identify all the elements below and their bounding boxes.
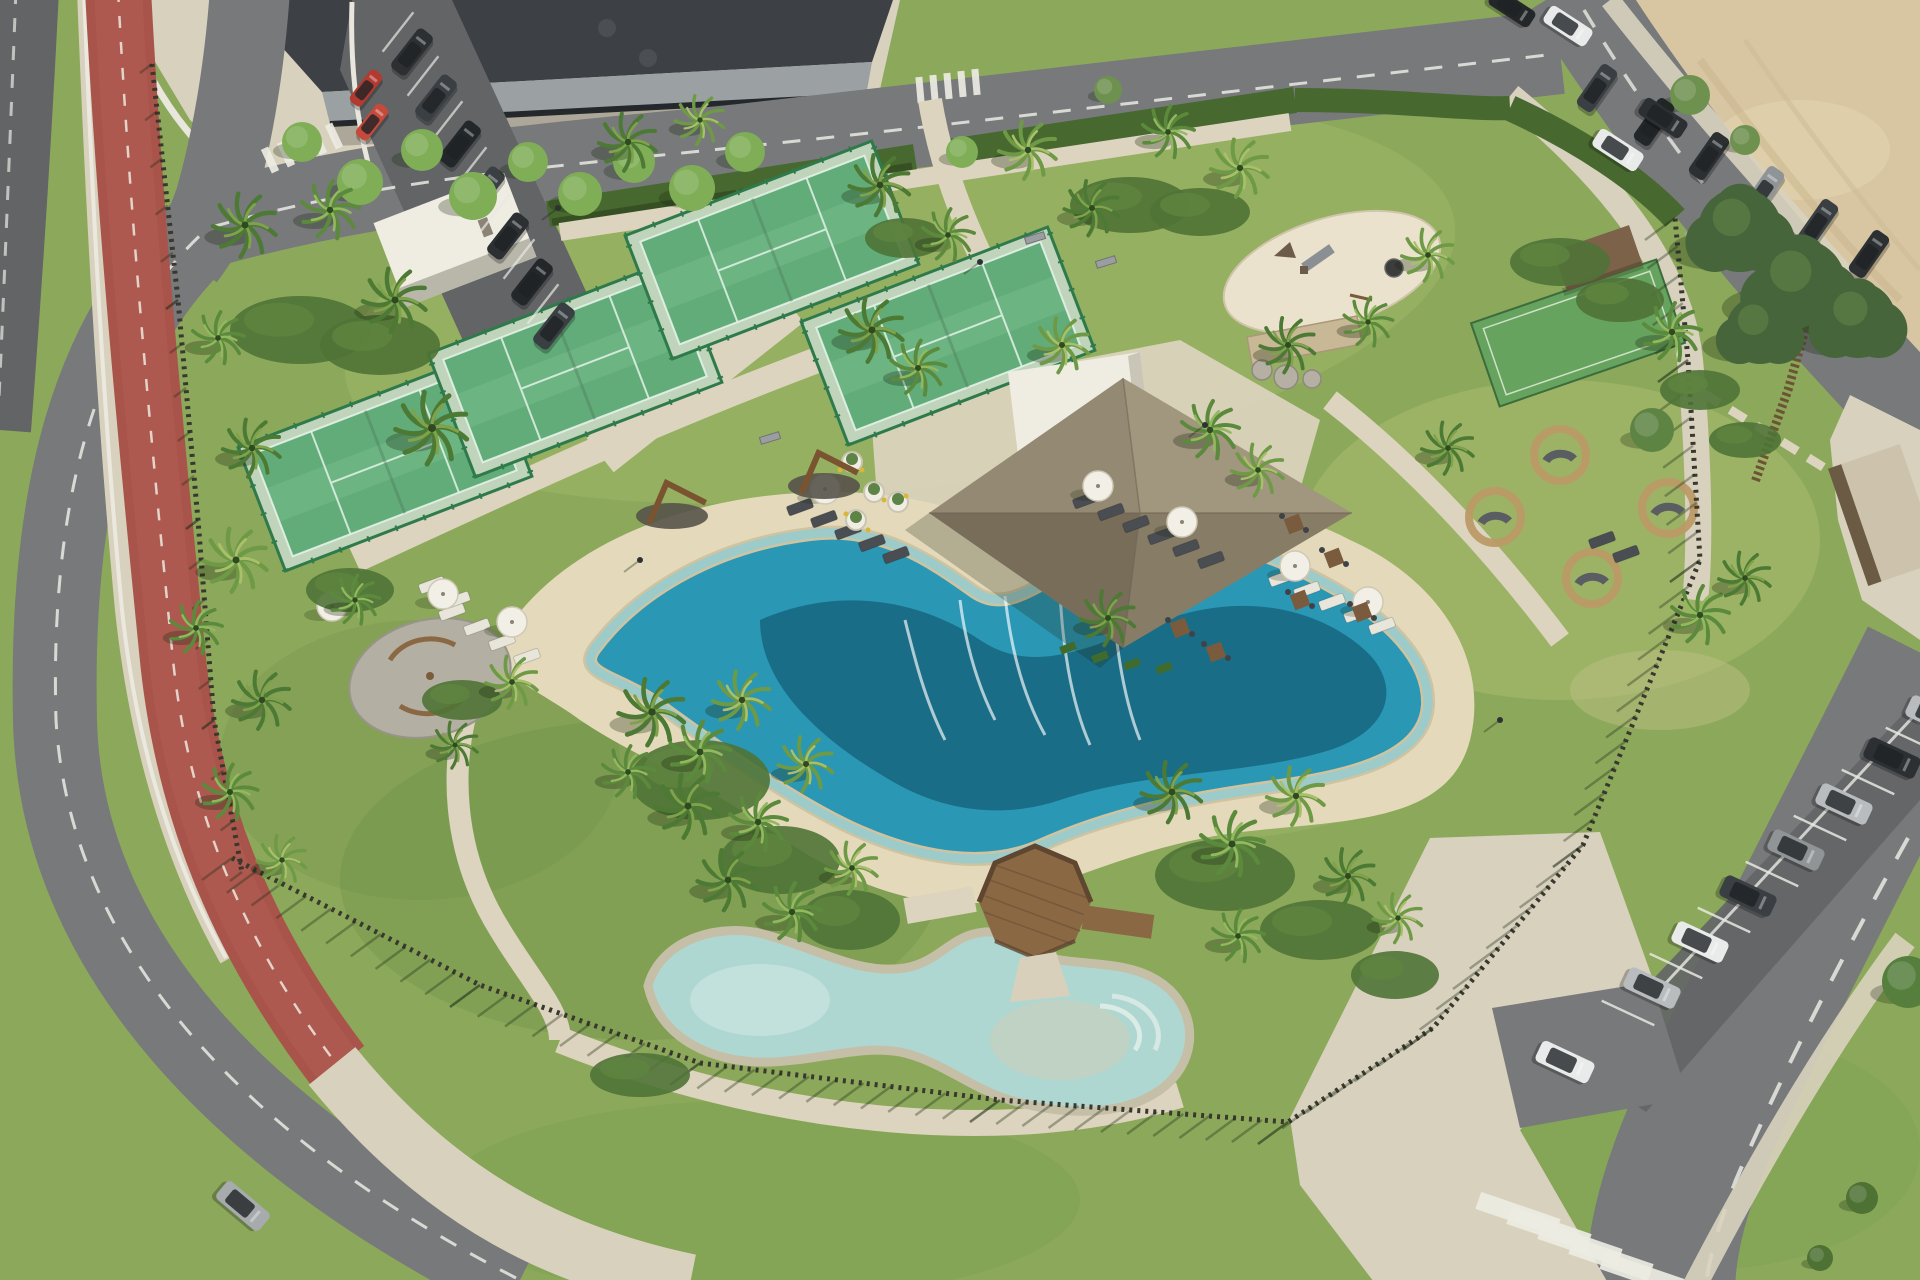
parasol-pole <box>1096 484 1100 488</box>
palm-crown <box>1425 252 1431 258</box>
tree-highlight <box>562 176 586 200</box>
palm-crown <box>327 207 333 213</box>
palm-crown <box>452 742 457 747</box>
chair <box>1309 603 1315 609</box>
shrub-bed <box>810 896 860 926</box>
tree-highlight <box>1634 412 1658 436</box>
palm-crown <box>193 625 199 631</box>
palm-crown <box>1255 467 1261 473</box>
olive-tree <box>868 483 880 495</box>
tree-highlight <box>1849 1185 1867 1203</box>
palm-crown <box>509 679 515 685</box>
shrub-bed <box>1585 282 1629 304</box>
palm-crown <box>1445 445 1451 451</box>
boulder <box>1303 370 1321 388</box>
palm-crown <box>1207 427 1213 433</box>
chair <box>1343 561 1349 567</box>
palm-crown <box>259 697 265 703</box>
palm-crown <box>215 335 221 341</box>
terrace-umbrella <box>639 49 657 67</box>
dense-tree-light <box>1833 292 1867 326</box>
terrace-umbrella <box>598 19 616 37</box>
shrub-bed <box>1360 956 1404 980</box>
tree-highlight <box>1733 128 1750 145</box>
olive-tree <box>892 493 904 505</box>
tree-highlight <box>512 146 534 168</box>
chair <box>1201 641 1207 647</box>
palm-crown <box>877 182 884 189</box>
tree-highlight <box>729 136 751 158</box>
olive-tree <box>846 453 858 465</box>
shrub-bed <box>430 684 470 704</box>
palm-crown <box>915 365 921 371</box>
palm-crown <box>1293 793 1299 799</box>
lamp-post <box>637 557 643 563</box>
palm-crown <box>868 326 875 333</box>
palm-crown <box>1235 933 1241 939</box>
palm-crown <box>1025 147 1031 153</box>
palm-crown <box>625 139 631 145</box>
lamp-post <box>555 205 561 211</box>
palm-crown <box>232 556 239 563</box>
palm-crown <box>279 857 284 862</box>
tree-highlight <box>342 164 367 189</box>
palm-crown <box>755 819 761 825</box>
lamp-post <box>1202 422 1208 428</box>
chair <box>1303 527 1309 533</box>
shrub-bed <box>1160 193 1210 217</box>
yellow-flowers <box>882 498 887 503</box>
aerial-resort-photo <box>0 0 1920 1280</box>
palm-crown <box>391 296 398 303</box>
chair <box>1279 513 1285 519</box>
yellow-flowers <box>844 512 849 517</box>
yellow-flowers <box>860 468 865 473</box>
shrub-bed <box>1520 243 1570 267</box>
palm-crown <box>697 749 704 756</box>
kids-pool-light <box>690 964 830 1036</box>
palm-crown <box>1105 615 1111 621</box>
tree-highlight <box>286 126 308 148</box>
yellow-flowers <box>904 494 909 499</box>
tree-highlight <box>454 177 480 203</box>
palm-crown <box>1742 575 1748 581</box>
palm-crown <box>1669 329 1675 335</box>
palm-crown <box>227 789 233 795</box>
palm-crown <box>803 761 809 767</box>
parasol-pole <box>510 620 514 624</box>
lamp-post <box>977 259 983 265</box>
fire-pit <box>426 672 434 680</box>
tree-highlight <box>674 170 699 195</box>
parasol-pole <box>1180 520 1184 524</box>
palm-crown <box>1285 342 1291 348</box>
hedge-ne <box>1295 100 1510 108</box>
aerial-photo-canvas <box>0 0 1920 1280</box>
tree-highlight <box>1097 79 1112 94</box>
olive-tree <box>850 511 862 523</box>
palm-crown <box>945 232 951 238</box>
playground-ladder <box>1300 266 1308 274</box>
yellow-flowers <box>838 468 843 473</box>
chair <box>1165 617 1171 623</box>
shrub-bed <box>1716 426 1752 444</box>
kids-pool-sand-floor <box>990 1000 1130 1080</box>
palm-crown <box>697 117 702 122</box>
palm-crown <box>1365 319 1370 324</box>
lamp-post <box>1497 717 1503 723</box>
palm-crown <box>725 877 732 884</box>
palm-crown <box>428 424 436 432</box>
palm-crown <box>1059 342 1065 348</box>
palm-crown <box>648 708 655 715</box>
palm-crown <box>739 697 745 703</box>
palm-crown <box>1237 165 1243 171</box>
palm-crown <box>789 909 795 915</box>
dense-tree-light <box>1770 251 1811 292</box>
palm-crown <box>1089 205 1095 211</box>
dense-tree-light <box>1713 199 1751 237</box>
tree-highlight <box>405 133 428 156</box>
shrub-bed <box>873 222 913 242</box>
yellow-flowers <box>866 528 871 533</box>
shrub-bed <box>244 303 314 337</box>
gravel-pad <box>788 473 860 499</box>
dense-tree-light <box>1738 305 1769 336</box>
palm-crown <box>352 597 357 602</box>
dry-grass-patch <box>1570 650 1750 730</box>
palm-crown <box>1228 840 1235 847</box>
chair <box>1285 589 1291 595</box>
road-far-left-lane <box>0 0 28 430</box>
tree-highlight <box>949 139 967 157</box>
palm-crown <box>249 445 255 451</box>
palm-crown <box>1165 129 1171 135</box>
shrub-bed <box>600 1057 650 1079</box>
tree-highlight <box>1674 79 1696 101</box>
chair <box>1371 615 1377 621</box>
palm-crown <box>1345 873 1351 879</box>
gravel-pad <box>636 503 708 529</box>
parasol-pole <box>441 592 445 596</box>
palm-crown <box>1169 789 1176 796</box>
palm-crown <box>241 221 248 228</box>
chair <box>1319 547 1325 553</box>
parasol-pole <box>1293 564 1297 568</box>
palm-crown <box>625 769 631 775</box>
tree-highlight <box>1810 1248 1824 1262</box>
chair <box>1189 631 1195 637</box>
shrub-bed <box>332 321 392 351</box>
tree-highlight <box>1887 961 1916 990</box>
shrub-bed <box>1668 374 1708 394</box>
shrub-bed <box>1272 906 1332 936</box>
chair <box>1347 601 1353 607</box>
palm-crown <box>684 802 691 809</box>
palm-crown <box>1395 915 1400 920</box>
palm-crown <box>849 865 855 871</box>
palm-crown <box>1697 612 1703 618</box>
chair <box>1225 655 1231 661</box>
